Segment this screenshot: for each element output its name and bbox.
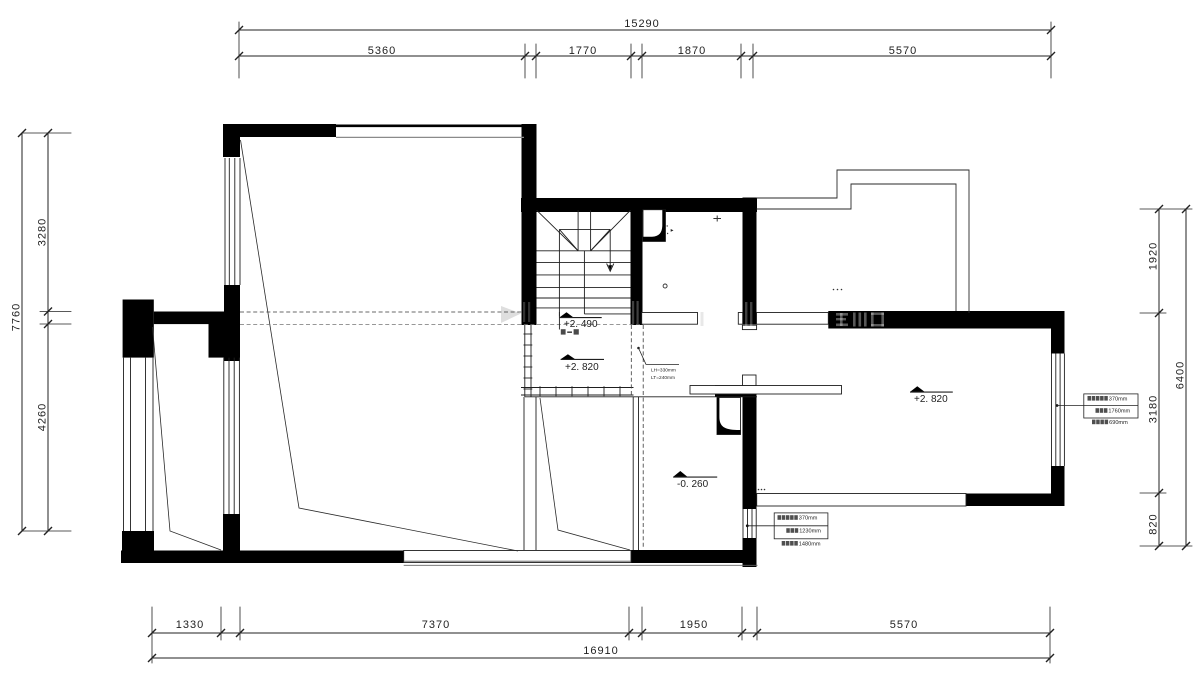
svg-text:1950: 1950 [680, 619, 708, 631]
svg-text:6400: 6400 [1175, 361, 1187, 389]
svg-text:7370: 7370 [422, 619, 450, 631]
svg-text:3180: 3180 [1148, 395, 1160, 423]
svg-text:690mm: 690mm [1109, 420, 1128, 426]
svg-text:1770: 1770 [569, 45, 597, 57]
svg-text:-0. 260: -0. 260 [677, 479, 709, 490]
svg-text:370mm: 370mm [1109, 397, 1128, 403]
svg-text:1330: 1330 [176, 619, 204, 631]
svg-text:1230mm: 1230mm [799, 529, 821, 535]
svg-text:3280: 3280 [37, 218, 49, 246]
svg-text:LT=240mm: LT=240mm [651, 375, 675, 381]
svg-text:+2. 820: +2. 820 [565, 362, 599, 373]
svg-text:820: 820 [1148, 513, 1160, 534]
svg-text:+2. 820: +2. 820 [914, 394, 948, 405]
svg-text:5570: 5570 [889, 45, 917, 57]
svg-text:5360: 5360 [368, 45, 396, 57]
svg-text:7760: 7760 [11, 303, 23, 331]
svg-text:16910: 16910 [583, 645, 619, 657]
svg-text:370mm: 370mm [799, 516, 818, 522]
svg-text:LH=330mm: LH=330mm [651, 368, 676, 374]
svg-text:1480mm: 1480mm [799, 542, 821, 548]
svg-text:1760mm: 1760mm [1108, 409, 1130, 415]
svg-text:15290: 15290 [624, 18, 660, 30]
svg-text:4260: 4260 [37, 403, 49, 431]
svg-text:5570: 5570 [890, 619, 918, 631]
svg-text:+2. 490: +2. 490 [564, 319, 598, 330]
svg-text:1920: 1920 [1148, 242, 1160, 270]
svg-text:1870: 1870 [678, 45, 706, 57]
